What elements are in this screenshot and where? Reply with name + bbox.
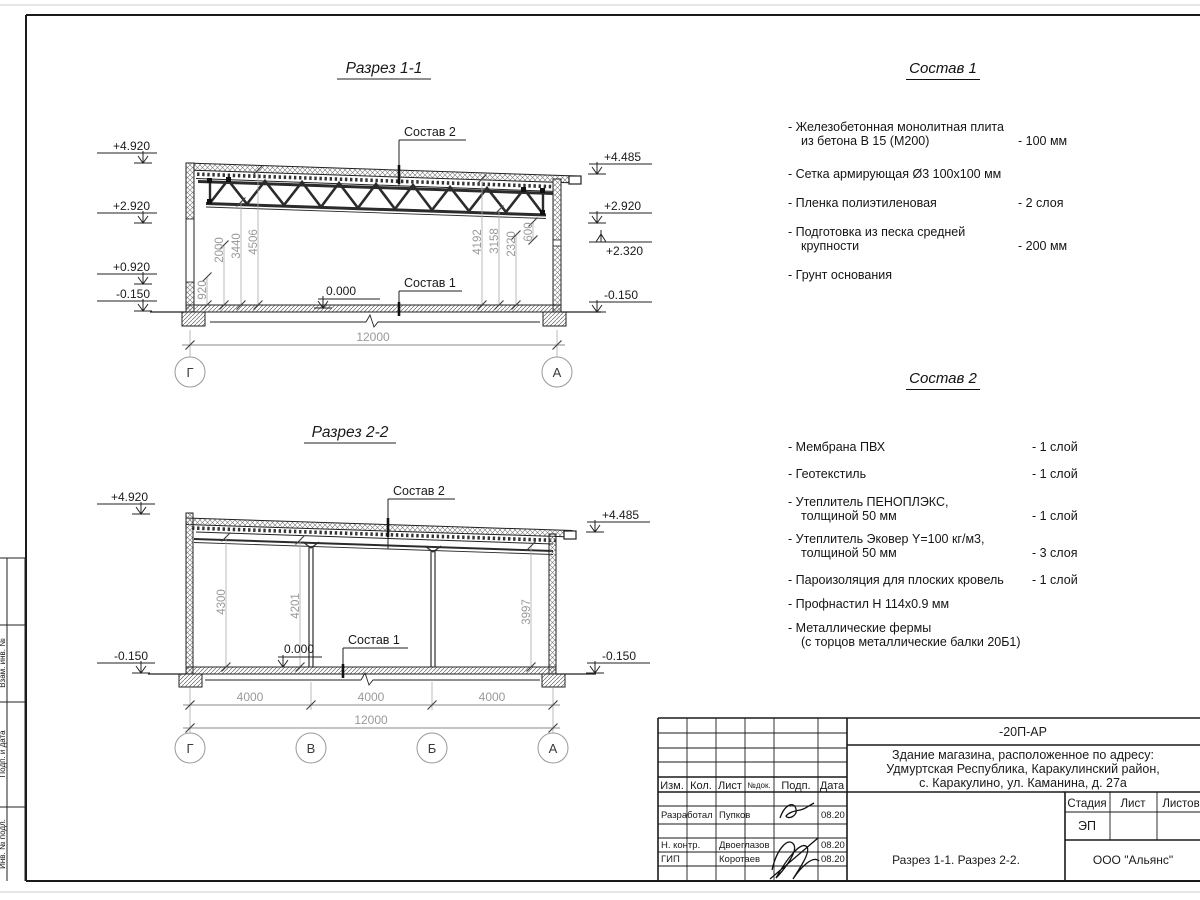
list-item: - Пленка полиэтиленовая - 2 слоя [788,196,1108,210]
leader-label: Состав 1 [348,633,400,647]
elevation-mark: -0.150 [116,287,150,301]
elevation-mark: +4.485 [602,508,639,522]
elevation-mark: +2.320 [606,244,643,258]
side-column-label-vzam: Взам. инв. № [0,638,7,688]
material-qty: - 1 слой [1032,509,1078,523]
section-1-bottom-dims: 12000 Г А [175,330,572,387]
dim-text: 3997 [521,599,533,625]
dim-text: 3158 [489,228,501,254]
elevation-mark: -0.150 [604,288,638,302]
tb-sheet-name: Разрез 1-1. Разрез 2-2. [892,853,1020,867]
list-item: - Мембрана ПВХ - 1 слой [788,440,1108,454]
section-2-bottom-dims: 4000 4000 4000 12000 Г В Б А [175,682,568,763]
zero-level: 0.000 [326,284,356,298]
axis-letter: Г [186,741,193,756]
list-item: - Железобетонная монолитная плита из бет… [788,120,1108,148]
project-address-line: Здание магазина, расположенное по адресу… [892,748,1154,762]
material-qty: - 1 слой [1032,467,1078,481]
dim-text: 4506 [248,229,260,255]
slab-bottom-line [210,315,540,327]
list-item: - Сетка армирующая Ø3 100х100 мм [788,167,1108,181]
doc-code: -20П-АР [999,725,1047,739]
leader-label: Состав 2 [393,484,445,498]
tb-name: Пупков [719,810,750,821]
drawing-sheet: Взам. инв. № Подп. и дата Инв. № подл. Р… [0,0,1200,900]
elevation-mark: +4.485 [604,150,641,164]
dim-text: 4201 [290,593,302,619]
slab-bottom-line [205,673,540,685]
elevation-mark: -0.150 [602,649,636,663]
roof-edge-cap [569,176,581,184]
list-item: - Профнастил Н 114х0.9 мм [788,597,1108,611]
dim-text: 4192 [472,229,484,255]
material-name: (с торцов металлические балки 20Б1) [788,635,1108,649]
axis-letter: Г [186,365,193,380]
tb-col-header: №док. [747,781,770,790]
dim-span: 4000 [479,690,506,704]
zero-level: 0.000 [284,642,314,656]
tb-col-header: Лист [718,780,742,792]
material-name: - Утеплитель ПЕНОПЛЭКС, [788,495,1108,509]
tb-col-header: Дата [820,780,845,792]
list-item: - Утеплитель ПЕНОПЛЭКС, толщиной 50 мм -… [788,495,1108,523]
project-address-line: с. Каракулино, ул. Каманина, д. 27а [919,776,1127,790]
dim-span: 4000 [237,690,264,704]
section-1-1-drawing: Разрез 1-1 [97,60,652,387]
tb-date: 08.20 [821,854,845,865]
leader-label: Состав 1 [404,276,456,290]
section-2-walls [186,513,556,674]
elevation-mark: +2.920 [113,199,150,213]
material-name: - Металлические фермы [788,621,1108,635]
tb-role: Разработал [661,810,713,821]
tb-name: Коротаев [719,854,760,865]
section-1-floor [150,305,601,327]
section-2-dim-ticks [222,533,536,672]
dim-text: 920 [197,280,209,299]
list-item: - Утеплитель Эковер Y=100 кг/м3, толщино… [788,532,1108,560]
tb-name: Двоеглазов [719,840,770,851]
material-qty: - 2 слоя [1018,196,1063,210]
sostav2-list: - Мембрана ПВХ - 1 слой - Геотекстиль - … [788,440,1108,650]
section-1-elevations-right: +4.485 +2.920 +2.320 -0.150 [588,150,652,312]
sostav1-title: Состав 1 [868,60,1018,77]
tb-date: 08.20 [821,810,845,821]
list-item: - Пароизоляция для плоских кровель - 1 с… [788,573,1108,587]
material-qty: - 1 слой [1032,440,1078,454]
elevation-mark: +2.920 [604,199,641,213]
section-2-roof [186,518,576,555]
material-name: - Железобетонная монолитная плита [788,120,1108,134]
material-qty: - 1 слой [1032,573,1078,587]
material-name: - Подготовка из песка средней [788,225,1108,239]
material-qty: - 200 мм [1018,239,1067,253]
dim-text: 4300 [216,589,228,615]
tb-stage-col: Листов [1162,798,1199,810]
elevation-mark: -0.150 [114,649,148,663]
axis-letter: Б [428,741,437,756]
axis-letter: В [307,741,316,756]
dim-text: 2000 [214,237,226,263]
dim-text: 2320 [506,231,518,257]
material-name: - Сетка армирующая Ø3 100х100 мм [788,167,1108,181]
list-item: - Подготовка из песка средней крупности … [788,225,1108,253]
roof-edge-cap [564,531,576,539]
material-qty: - 100 мм [1018,134,1067,148]
signature-gip [770,838,819,879]
side-column-label-podp: Подп. и дата [0,730,7,778]
leader-label: Состав 2 [404,125,456,139]
side-column-label-inv: Инв. № подл. [0,819,7,869]
sostav2-title-text: Состав 2 [906,370,980,390]
tb-stage-col: Лист [1121,798,1147,810]
tb-company: ООО "Альянс" [1093,853,1173,867]
section-2-title: Разрез 2-2 [312,424,389,441]
title-block: -20П-АР Здание магазина, расположенное п… [658,718,1200,881]
section-1-zero-mark: 0.000 [314,284,380,308]
signature-razrabotal [780,803,814,818]
tb-col-header: Подп. [781,780,810,792]
section-2-2-drawing: Разрез 2-2 [97,424,650,763]
axis-letter: А [553,365,562,380]
section-2-zero-mark: 0.000 [274,642,322,667]
dim-total: 12000 [356,330,390,344]
section-1-title: Разрез 1-1 [346,60,423,77]
project-address-line: Удмуртская Республика, Каракулинский рай… [886,762,1160,776]
tb-col-header: Изм. [660,780,684,792]
sostav1-list: - Железобетонная монолитная плита из бет… [788,120,1108,290]
dim-total: 12000 [354,713,388,727]
material-name: - Профнастил Н 114х0.9 мм [788,597,1108,611]
list-item: - Металлические фермы (с торцов металлич… [788,621,1108,649]
tb-role: ГИП [661,854,680,865]
material-qty: - 3 слоя [1032,546,1077,560]
tb-role: Н. контр. [661,840,700,851]
axis-letter: А [549,741,558,756]
elevation-mark: +0.920 [113,260,150,274]
elevation-mark: +4.920 [113,139,150,153]
material-name: - Утеплитель Эковер Y=100 кг/м3, [788,532,1108,546]
section-1-elevations-left: +4.920 +2.920 +0.920 -0.150 [97,139,157,311]
tb-stage-value: ЭП [1078,819,1096,833]
list-item: - Геотекстиль - 1 слой [788,467,1108,481]
elevation-mark: +4.920 [111,490,148,504]
tb-date: 08.20 [821,840,845,851]
dim-text: 600 [523,222,535,241]
dim-text: 3440 [231,233,243,259]
sostav1-title-text: Состав 1 [906,60,980,80]
sostav2-title: Состав 2 [868,370,1018,387]
material-name: - Грунт основания [788,268,1108,282]
tb-stage-col: Стадия [1067,798,1106,810]
dim-span: 4000 [358,690,385,704]
list-item: - Грунт основания [788,268,1108,282]
tb-col-header: Кол. [690,780,712,792]
